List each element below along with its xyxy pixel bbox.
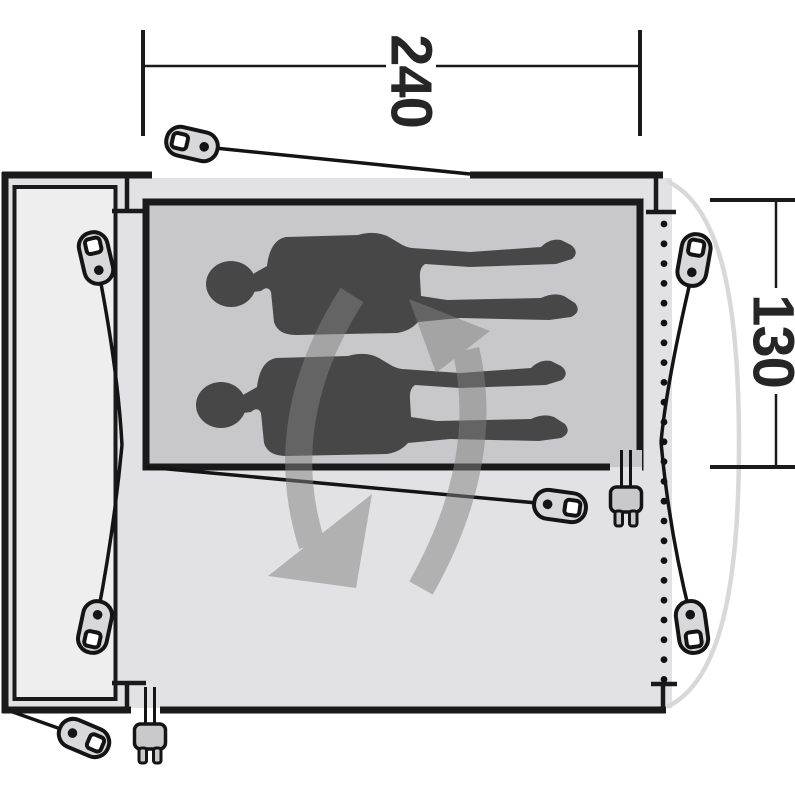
tent-peg-icon bbox=[532, 488, 588, 524]
zipper-dot bbox=[661, 419, 668, 426]
tent-peg-icon bbox=[54, 714, 113, 761]
zipper-dot bbox=[661, 379, 668, 386]
zipper-dot bbox=[661, 478, 668, 485]
zipper-dot bbox=[661, 537, 668, 544]
zipper-dot bbox=[661, 557, 668, 564]
tent-peg-icon bbox=[163, 124, 220, 164]
zipper-dot bbox=[661, 339, 668, 346]
zipper-dot bbox=[661, 399, 668, 406]
guy-line bbox=[205, 147, 470, 174]
dimension-label-depth: 130 bbox=[741, 294, 795, 388]
zipper-dot bbox=[661, 438, 668, 445]
zipper-dot bbox=[661, 320, 668, 327]
zipper-dot bbox=[661, 656, 668, 663]
zipper-dot bbox=[661, 518, 668, 525]
zipper-dot bbox=[661, 676, 668, 683]
cable-gap-upper bbox=[610, 450, 642, 467]
zipper-dot bbox=[661, 636, 668, 643]
dimension-width: 240 bbox=[143, 29, 640, 136]
zipper-dot bbox=[661, 617, 668, 624]
dimension-depth: 130 bbox=[710, 200, 795, 467]
zipper-dot bbox=[661, 300, 668, 307]
tent-peg-icon bbox=[674, 599, 710, 655]
floorplan-svg: 240 130 bbox=[0, 0, 795, 795]
zipper-dot bbox=[661, 458, 668, 465]
zipper-dot bbox=[661, 359, 668, 366]
zipper-dot bbox=[661, 597, 668, 604]
zipper-dot bbox=[661, 280, 668, 287]
zipper-dot bbox=[661, 577, 668, 584]
tent-floorplan-diagram: 240 130 bbox=[0, 0, 795, 795]
zipper-dot bbox=[661, 498, 668, 505]
zipper-dot bbox=[661, 260, 668, 267]
zipper-dot bbox=[661, 240, 668, 247]
dimension-label-width: 240 bbox=[379, 34, 444, 128]
tent-peg-icon bbox=[675, 232, 713, 288]
cable-gap-lower bbox=[610, 467, 642, 479]
zipper-dot bbox=[661, 221, 668, 228]
